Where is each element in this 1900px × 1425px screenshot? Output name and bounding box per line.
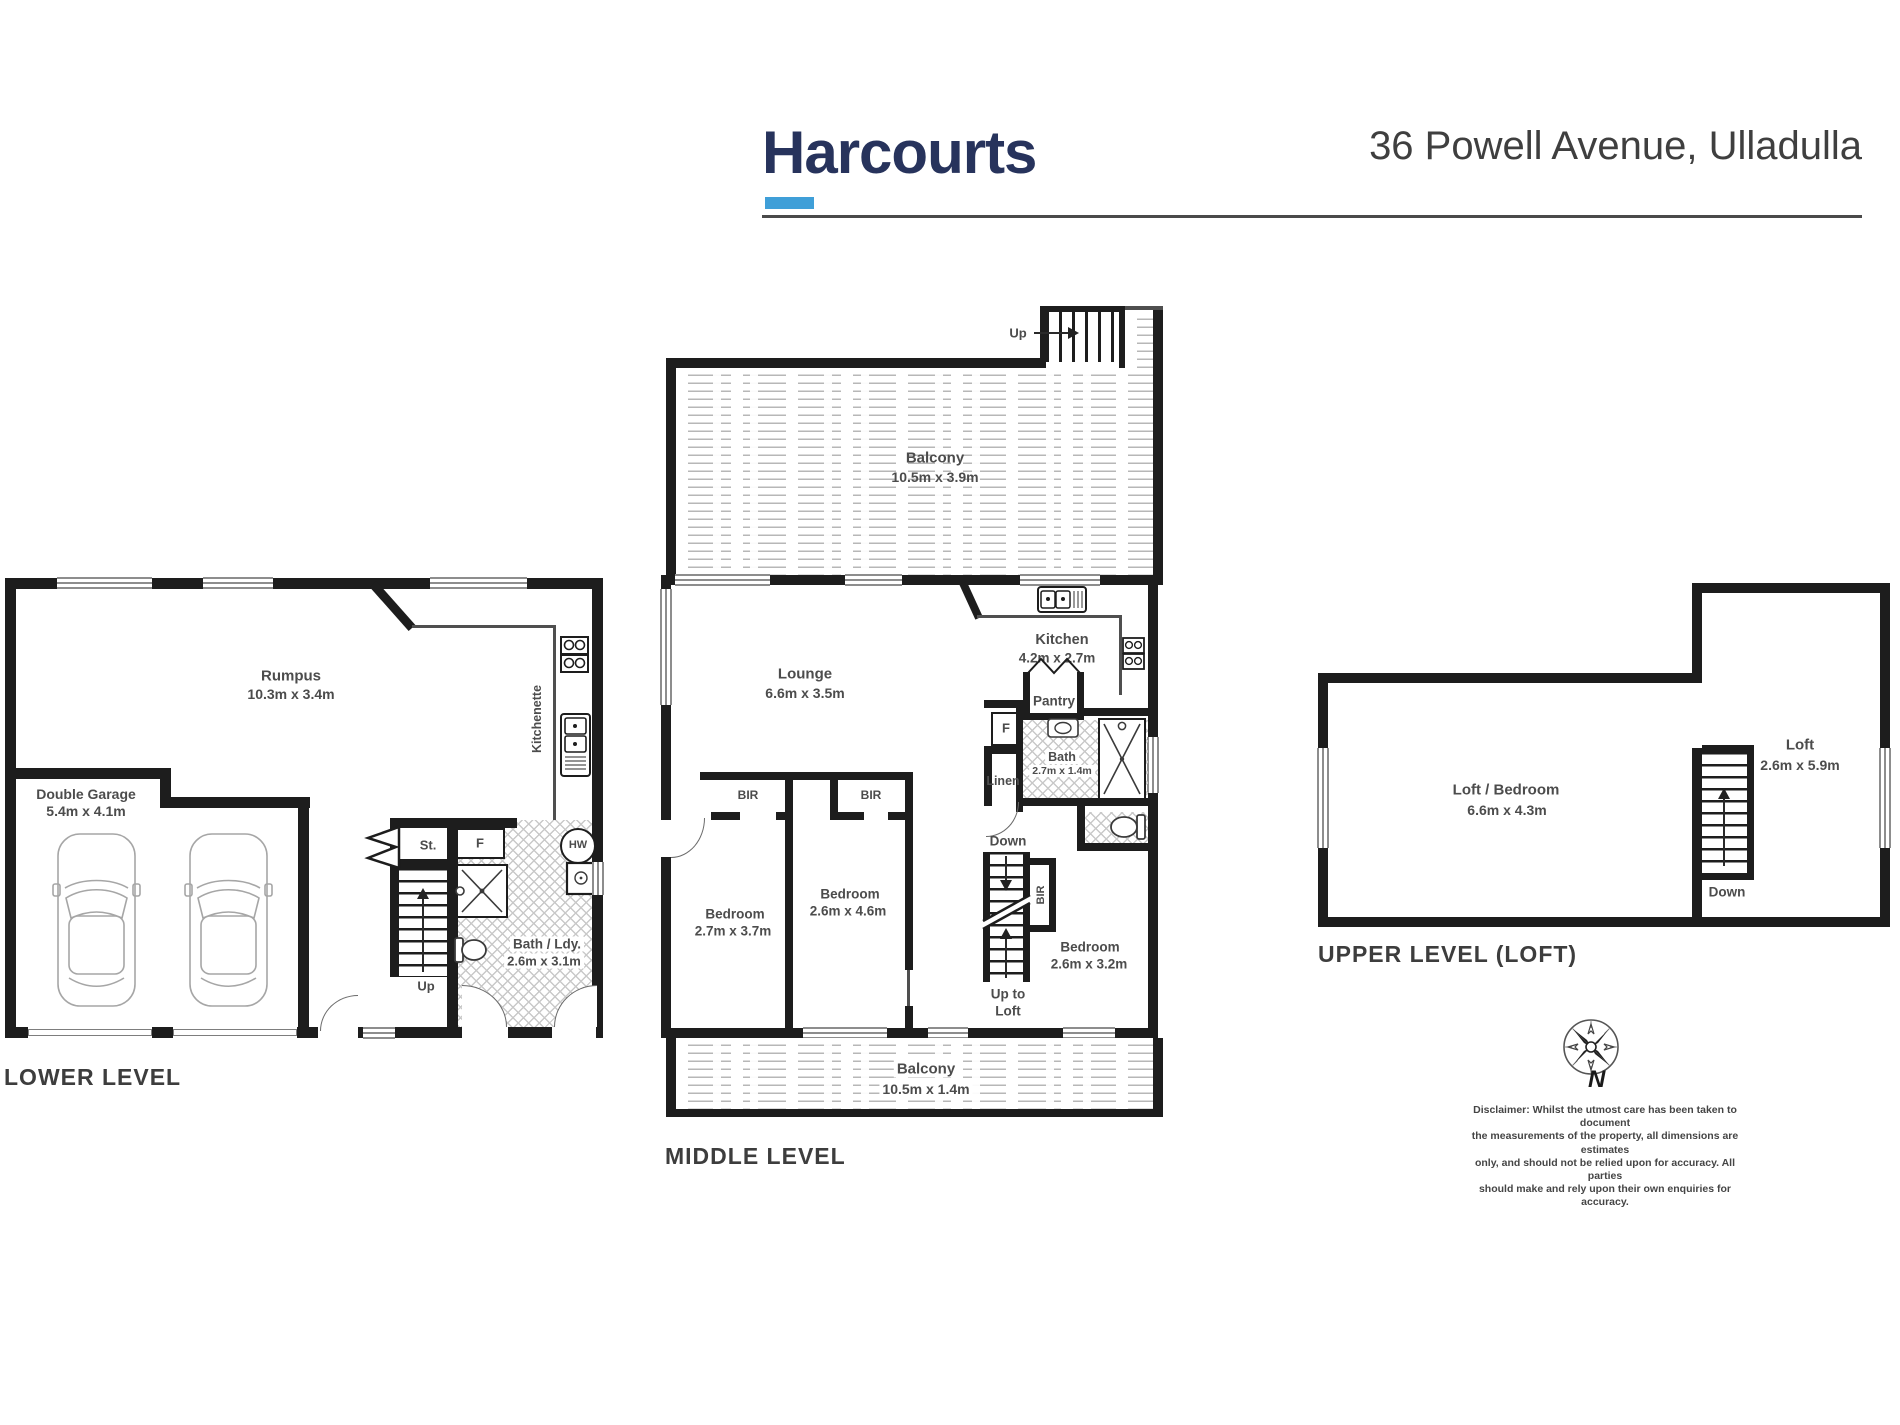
window [1317, 748, 1329, 798]
garage-door [28, 1029, 152, 1036]
wall [1040, 306, 1125, 312]
linen-label: Linen [986, 774, 1019, 788]
window [675, 574, 770, 586]
wall [1318, 917, 1698, 927]
middle-level-label: MIDDLE LEVEL [665, 1143, 846, 1170]
wall [592, 578, 603, 1038]
garage-name: Double Garage [36, 786, 136, 802]
stair-arrow-line [422, 898, 424, 972]
disclaimer-line: only, and should not be relied upon for … [1470, 1157, 1740, 1183]
storage-label: St. [420, 838, 437, 853]
wall [785, 772, 793, 1028]
door-opening [661, 820, 671, 857]
toilet-icon [1108, 812, 1146, 842]
wall [1692, 917, 1890, 927]
bath-dims: 2.7m x 1.4m [1029, 765, 1095, 777]
lounge-dims: 6.6m x 3.5m [765, 685, 844, 701]
up-label: Up [417, 979, 434, 994]
stair-break [983, 895, 1030, 921]
disclaimer-line: should make and rely upon their own enqu… [1470, 1183, 1740, 1209]
harcourts-logo: Harcourts [762, 118, 1036, 187]
bench-edge [977, 615, 1122, 618]
diagonal-wall [0, 0, 1, 1]
wall [905, 772, 913, 970]
wall [396, 859, 458, 868]
fridge-label: F [1002, 721, 1010, 736]
garage-door [173, 1029, 297, 1036]
wall [711, 812, 740, 820]
wall [298, 797, 309, 1038]
cooktop-icon [1122, 637, 1145, 670]
window [660, 589, 672, 705]
garage-dims: 5.4m x 4.1m [46, 803, 125, 819]
logo-accent-bar [765, 197, 814, 209]
wall [838, 812, 864, 820]
pantry-door-zigzag [1028, 658, 1080, 674]
stair-arrow-line [1005, 938, 1007, 978]
wall [830, 772, 838, 820]
kitchen-name: Kitchen [1035, 632, 1088, 648]
bed2-dims: 2.6m x 4.6m [810, 904, 887, 919]
wall [666, 358, 1044, 368]
toilet-icon [454, 934, 488, 966]
down-label: Down [990, 834, 1027, 849]
lounge-name: Lounge [778, 666, 832, 683]
bath-name: Bath / Ldy. [510, 937, 584, 952]
wall [1153, 1038, 1163, 1117]
up-arrow [1718, 788, 1730, 799]
wall [1084, 708, 1156, 716]
bed1-name: Bedroom [705, 907, 764, 922]
sink-icon [1037, 586, 1087, 613]
header-rule [762, 215, 1862, 218]
property-address: 36 Powell Avenue, Ulladulla [1122, 124, 1862, 169]
bir-label: BIR [1035, 886, 1047, 905]
window [363, 1027, 395, 1039]
car-icon [52, 826, 141, 1013]
bench-edge [553, 625, 556, 820]
balcony-top-dims: 10.5m x 3.9m [891, 469, 978, 485]
car-icon [184, 826, 273, 1013]
wall [5, 578, 16, 1038]
wall [700, 772, 913, 780]
wall [1016, 700, 1023, 812]
disclaimer-line: Disclaimer: Whilst the utmost care has b… [1470, 1104, 1740, 1130]
wall [1747, 745, 1754, 880]
window [845, 574, 902, 586]
wall [1692, 748, 1702, 917]
fridge-label: F [476, 836, 484, 851]
cooktop-icon [560, 636, 589, 673]
window [1020, 574, 1100, 586]
wall [1049, 858, 1056, 932]
stair-arrow-line [1034, 332, 1072, 334]
wall [1153, 306, 1163, 585]
balcony-top-name: Balcony [906, 450, 964, 467]
door-arc [671, 818, 705, 858]
disclaimer: Disclaimer: Whilst the utmost care has b… [1470, 1104, 1740, 1210]
window [592, 862, 604, 895]
wall [1016, 798, 1156, 806]
wall [666, 1109, 1163, 1117]
upper-level-label: UPPER LEVEL (LOFT) [1318, 941, 1577, 968]
rumpus-dims: 10.3m x 3.4m [247, 686, 334, 702]
wall [888, 812, 905, 820]
shower-glyph [458, 866, 506, 916]
up-to-loft-label: Up to [991, 987, 1026, 1002]
balcony-bottom-name: Balcony [894, 1061, 958, 1078]
wall [5, 768, 165, 779]
up-arrow [417, 888, 429, 899]
wall [160, 797, 310, 808]
loft-dims: 2.6m x 5.9m [1760, 757, 1839, 773]
disclaimer-line: the measurements of the property, all di… [1470, 1130, 1740, 1156]
window [1317, 798, 1329, 848]
wall [905, 1006, 913, 1028]
sliding-door [907, 970, 910, 1006]
loft-bedroom-name: Loft / Bedroom [1453, 782, 1560, 799]
loft-name: Loft [1786, 737, 1814, 754]
window [1879, 748, 1891, 848]
door-opening [552, 1027, 596, 1038]
rumpus-name: Rumpus [261, 668, 321, 685]
hot-water-label: HW [569, 839, 587, 851]
bed1-dims: 2.7m x 3.7m [695, 924, 772, 939]
bir-label: BIR [861, 788, 882, 802]
storage-door-zigzag [366, 826, 400, 870]
bath-name: Bath [1045, 750, 1079, 764]
stair-arrow-line [1723, 798, 1725, 866]
stair-arrow-line [1005, 856, 1007, 882]
wall [1040, 306, 1046, 368]
wall [1692, 583, 1890, 593]
bed3-name: Bedroom [1060, 940, 1119, 955]
down-arrow [1000, 880, 1012, 891]
shower-glyph [1100, 720, 1144, 798]
loft-bedroom-dims: 6.6m x 4.3m [1467, 802, 1546, 818]
bir-label: BIR [738, 788, 759, 802]
wall [1692, 583, 1702, 683]
bed2-name: Bedroom [820, 887, 879, 902]
bed3-dims: 2.6m x 3.2m [1051, 957, 1128, 972]
wall [1148, 575, 1158, 1038]
kitchenette-label: Kitchenette [530, 685, 544, 753]
bench-edge [412, 625, 555, 628]
door-opening [462, 1027, 508, 1038]
vanity-basin-icon [1047, 718, 1079, 738]
bath-dims: 2.6m x 3.1m [504, 954, 584, 969]
up-to-loft-label: Loft [995, 1004, 1020, 1019]
window [203, 577, 273, 589]
balcony-bottom-dims: 10.5m x 1.4m [879, 1081, 972, 1097]
up-arrow [1000, 928, 1012, 939]
north-label: N [1588, 1066, 1605, 1094]
stairs [1046, 312, 1119, 362]
down-label: Down [1709, 885, 1746, 900]
floorplan-page: Harcourts 36 Powell Avenue, Ulladulla [0, 0, 1900, 1425]
door-arc [320, 995, 358, 1031]
right-arrow [1068, 327, 1079, 339]
wall [1318, 673, 1698, 683]
wall [1125, 306, 1163, 310]
window [430, 577, 527, 589]
wall [666, 1038, 676, 1117]
sink-icon [560, 713, 591, 777]
up-label: Up [1009, 326, 1026, 341]
wall [1702, 873, 1754, 880]
wall [666, 358, 676, 585]
window [57, 577, 152, 589]
wall [1077, 843, 1156, 851]
lower-level-label: LOWER LEVEL [4, 1064, 181, 1091]
balcony-deck [1125, 312, 1153, 370]
wall [1119, 306, 1125, 368]
pantry-label: Pantry [1033, 694, 1075, 709]
window [1147, 737, 1159, 793]
door-arc [986, 802, 1019, 837]
